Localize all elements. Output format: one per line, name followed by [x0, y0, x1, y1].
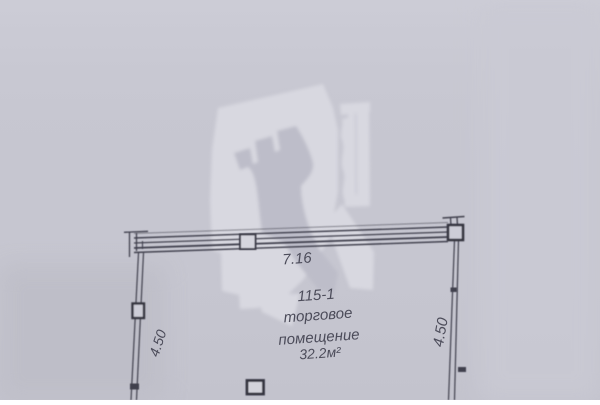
svg-text:115-1: 115-1	[297, 286, 335, 306]
svg-text:7.16: 7.16	[282, 249, 313, 268]
svg-text:32.2м²: 32.2м²	[299, 343, 343, 362]
